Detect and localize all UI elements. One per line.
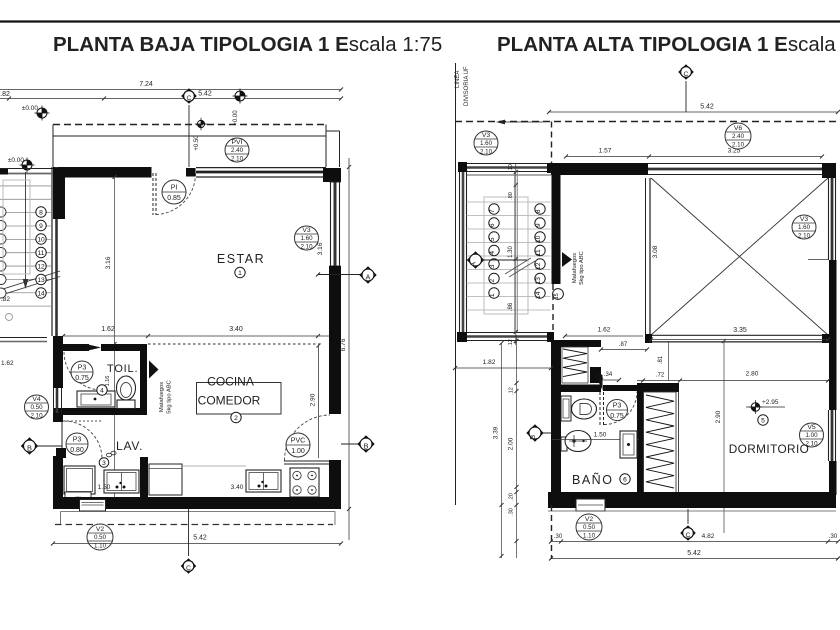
svg-text:2.10: 2.10 bbox=[732, 141, 745, 148]
svg-text:LINEA: LINEA bbox=[455, 71, 461, 88]
svg-text:2.10: 2.10 bbox=[798, 232, 811, 239]
svg-text:9: 9 bbox=[535, 223, 542, 227]
svg-text:14: 14 bbox=[37, 290, 45, 297]
svg-text:2: 2 bbox=[234, 415, 238, 422]
svg-text:PLANTA BAJA TIPOLOGIA 1 Escal: PLANTA BAJA TIPOLOGIA 1 Escala 1:75 bbox=[53, 33, 442, 56]
svg-text:2.00: 2.00 bbox=[508, 437, 515, 450]
svg-text:8: 8 bbox=[39, 209, 43, 216]
svg-text:8: 8 bbox=[535, 209, 542, 213]
svg-text:+0.50: +0.50 bbox=[194, 135, 200, 151]
svg-text:V3: V3 bbox=[800, 216, 809, 223]
svg-text:.82: .82 bbox=[0, 91, 10, 98]
svg-text:V2: V2 bbox=[585, 516, 594, 523]
svg-text:5: 5 bbox=[489, 237, 496, 241]
svg-text:3.35: 3.35 bbox=[733, 327, 747, 334]
svg-text:.30: .30 bbox=[829, 534, 838, 540]
svg-text:10: 10 bbox=[37, 236, 45, 243]
svg-text:0.85: 0.85 bbox=[167, 195, 181, 202]
svg-text:DIVISORIA UF: DIVISORIA UF bbox=[464, 66, 470, 106]
svg-text:4: 4 bbox=[489, 251, 496, 255]
svg-text:.87: .87 bbox=[619, 342, 628, 348]
svg-text:BAÑO: BAÑO bbox=[572, 473, 613, 487]
svg-text:C: C bbox=[684, 71, 689, 78]
svg-text:.20: .20 bbox=[509, 493, 515, 501]
svg-text:.12: .12 bbox=[509, 387, 515, 395]
svg-text:B: B bbox=[27, 443, 32, 452]
svg-text:4: 4 bbox=[100, 387, 104, 394]
svg-text:3.39: 3.39 bbox=[493, 426, 500, 439]
svg-text:5.42: 5.42 bbox=[198, 91, 212, 98]
svg-text:1.82: 1.82 bbox=[483, 359, 496, 366]
svg-text:.81: .81 bbox=[658, 355, 664, 364]
svg-text:5.42: 5.42 bbox=[687, 550, 701, 557]
svg-text:2.90: 2.90 bbox=[715, 410, 722, 423]
svg-text:1.62: 1.62 bbox=[101, 326, 115, 333]
svg-text:.30: .30 bbox=[554, 534, 563, 540]
svg-text:B: B bbox=[364, 441, 369, 450]
svg-text:1.60: 1.60 bbox=[798, 224, 811, 231]
svg-text:1.62: 1.62 bbox=[598, 327, 611, 334]
svg-text:COMEDOR: COMEDOR bbox=[198, 394, 261, 408]
svg-text:.82: .82 bbox=[1, 296, 10, 303]
svg-text:11: 11 bbox=[535, 249, 542, 256]
svg-text:3.40: 3.40 bbox=[231, 484, 244, 491]
svg-text:5.42: 5.42 bbox=[700, 104, 714, 111]
svg-text:2.10: 2.10 bbox=[480, 148, 493, 155]
svg-text:7.24: 7.24 bbox=[139, 81, 153, 88]
svg-text:10: 10 bbox=[535, 235, 542, 243]
svg-text:TOIL.: TOIL. bbox=[107, 363, 138, 375]
svg-text:1.60: 1.60 bbox=[480, 140, 493, 147]
svg-text:7: 7 bbox=[489, 209, 496, 213]
svg-text:DORMITORIO: DORMITORIO bbox=[729, 442, 809, 456]
svg-text:14: 14 bbox=[535, 291, 542, 299]
svg-text:V2: V2 bbox=[96, 526, 105, 533]
svg-text:P3: P3 bbox=[613, 403, 622, 410]
svg-text:5kg tipo ABC: 5kg tipo ABC bbox=[579, 251, 585, 285]
svg-text:V3: V3 bbox=[302, 227, 311, 234]
svg-text:0.50: 0.50 bbox=[94, 534, 107, 541]
svg-text:1.16: 1.16 bbox=[105, 376, 111, 387]
svg-text:1: 1 bbox=[238, 270, 242, 277]
svg-text:V6: V6 bbox=[734, 125, 743, 132]
svg-text:3.40: 3.40 bbox=[229, 326, 243, 333]
svg-text:1.00: 1.00 bbox=[805, 432, 818, 439]
svg-text:2.90: 2.90 bbox=[310, 393, 317, 406]
svg-text:2.40: 2.40 bbox=[231, 147, 244, 154]
svg-text:1: 1 bbox=[489, 293, 496, 297]
svg-text:V5: V5 bbox=[807, 424, 816, 431]
svg-text:+2.95: +2.95 bbox=[762, 399, 779, 406]
svg-text:2.10: 2.10 bbox=[30, 412, 43, 419]
svg-text:Matafuegos: Matafuegos bbox=[572, 253, 578, 283]
svg-text:P3: P3 bbox=[73, 437, 82, 444]
svg-text:PVI: PVI bbox=[232, 139, 243, 146]
svg-text:B: B bbox=[528, 435, 537, 440]
svg-text:2.40: 2.40 bbox=[732, 133, 745, 140]
svg-text:1.30: 1.30 bbox=[508, 246, 514, 258]
svg-text:A: A bbox=[469, 262, 478, 267]
svg-text:±0.00: ±0.00 bbox=[22, 105, 39, 112]
svg-text:A: A bbox=[366, 272, 371, 281]
svg-text:C: C bbox=[187, 95, 192, 102]
svg-text:3.16: 3.16 bbox=[317, 242, 324, 255]
svg-text:3.16: 3.16 bbox=[105, 256, 112, 269]
svg-text:±0.00: ±0.00 bbox=[8, 157, 25, 164]
svg-text:11: 11 bbox=[38, 250, 45, 257]
svg-text:C: C bbox=[186, 565, 191, 572]
svg-text:6.76: 6.76 bbox=[340, 338, 347, 351]
svg-text:0.80: 0.80 bbox=[70, 447, 84, 454]
svg-text:3.08: 3.08 bbox=[652, 245, 659, 258]
svg-text:V3: V3 bbox=[482, 132, 491, 139]
svg-text:C: C bbox=[686, 532, 691, 539]
svg-text:15: 15 bbox=[554, 293, 560, 299]
svg-text:Matafuegos: Matafuegos bbox=[159, 382, 165, 412]
svg-text:12: 12 bbox=[535, 262, 542, 270]
svg-text:.34: .34 bbox=[604, 372, 613, 378]
svg-text:1.62: 1.62 bbox=[1, 360, 14, 367]
svg-text:5kg tipo ABC: 5kg tipo ABC bbox=[167, 380, 173, 414]
svg-text:1.50: 1.50 bbox=[594, 432, 607, 439]
svg-text:9: 9 bbox=[39, 223, 43, 230]
svg-text:5.42: 5.42 bbox=[193, 535, 207, 542]
svg-text:.12: .12 bbox=[508, 339, 514, 347]
svg-text:V4: V4 bbox=[32, 396, 41, 403]
svg-text:P3: P3 bbox=[78, 365, 87, 372]
svg-text:PI: PI bbox=[171, 185, 178, 192]
svg-text:2.10: 2.10 bbox=[300, 243, 313, 250]
svg-text:1.60: 1.60 bbox=[300, 235, 313, 242]
svg-text:4.82: 4.82 bbox=[702, 533, 715, 540]
svg-text:.80: .80 bbox=[508, 192, 514, 200]
svg-text:.30: .30 bbox=[509, 508, 515, 516]
svg-text:12: 12 bbox=[37, 263, 45, 270]
svg-text:2.10: 2.10 bbox=[231, 155, 244, 162]
svg-text:ESTAR: ESTAR bbox=[217, 252, 265, 266]
svg-text:1.57: 1.57 bbox=[599, 148, 612, 155]
svg-text:1.00: 1.00 bbox=[291, 448, 305, 455]
svg-text:0.50: 0.50 bbox=[30, 404, 43, 411]
svg-text:0.75: 0.75 bbox=[75, 375, 89, 382]
svg-text:1.10: 1.10 bbox=[583, 532, 596, 539]
svg-text:1.50: 1.50 bbox=[98, 484, 111, 491]
svg-text:.10: .10 bbox=[508, 164, 514, 172]
svg-text:0.50: 0.50 bbox=[583, 524, 596, 531]
svg-text:LAV.: LAV. bbox=[116, 439, 143, 453]
svg-text:COCINA: COCINA bbox=[207, 375, 254, 389]
svg-text:3: 3 bbox=[102, 460, 106, 467]
svg-text:.86: .86 bbox=[508, 302, 514, 311]
svg-text:6: 6 bbox=[489, 223, 496, 227]
svg-text:.72: .72 bbox=[656, 373, 665, 379]
svg-text:6: 6 bbox=[623, 476, 627, 483]
svg-text:13: 13 bbox=[37, 277, 45, 284]
svg-text:2.80: 2.80 bbox=[746, 371, 759, 378]
svg-text:PVC: PVC bbox=[291, 438, 305, 445]
svg-text:PLANTA ALTA TIPOLOGIA 1 Esca: PLANTA ALTA TIPOLOGIA 1 Escala bbox=[497, 33, 836, 56]
svg-text:5: 5 bbox=[761, 417, 765, 424]
svg-text:2: 2 bbox=[489, 279, 496, 283]
svg-text:+0.00: +0.00 bbox=[233, 110, 239, 126]
svg-text:0.75: 0.75 bbox=[610, 413, 624, 420]
svg-text:13: 13 bbox=[535, 277, 542, 285]
svg-text:3: 3 bbox=[489, 264, 496, 268]
